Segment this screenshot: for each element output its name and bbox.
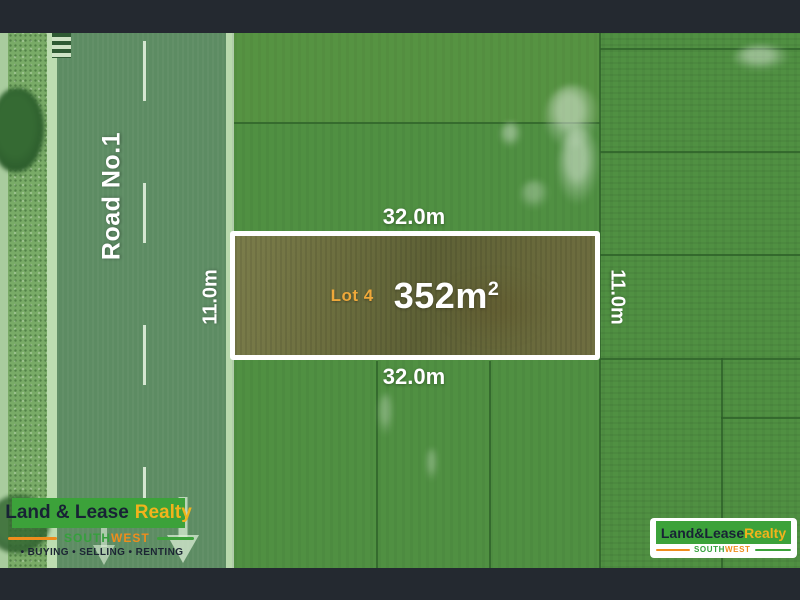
field-right-texture (600, 33, 800, 568)
bare-ground-patch (378, 393, 394, 437)
bare-ground-patch (733, 45, 791, 71)
dimension-bottom-label: 32.0m (383, 364, 445, 390)
lot-area-label: 352m2 (394, 275, 500, 317)
agency-name-banner: Land&Lease Realty (656, 521, 791, 544)
region-label-west: WEST (111, 531, 150, 545)
dimension-top-label: 32.0m (383, 204, 445, 230)
road-center-line (143, 41, 146, 568)
brand-name-accent: Realty (135, 502, 192, 524)
brand-name-accent: Realty (744, 525, 786, 541)
boundary-line (489, 361, 491, 568)
dimension-left-label: 11.0m (200, 269, 223, 325)
region-divider-orange (8, 537, 57, 540)
boundary-line (376, 361, 378, 568)
agency-name-banner: Land & Lease Realty (12, 498, 185, 528)
region-label-south: SOUTH (694, 545, 725, 554)
letterbox-bottom (0, 568, 800, 600)
bare-ground-patch (520, 180, 550, 210)
listing-image: Lot 4 352m2 Road No.1 32.0m 32.0m 11.0m … (0, 0, 800, 600)
road-name-label: Road No.1 (98, 132, 127, 260)
lot-area-superscript: 2 (488, 278, 500, 300)
brand-name-primary: Land & Lease (5, 502, 129, 524)
region-label-west: WEST (725, 545, 751, 554)
bare-ground-patch (500, 122, 522, 148)
region-label: SOUTHWEST (64, 531, 150, 545)
region-divider-orange (656, 549, 690, 551)
letterbox-top (0, 0, 800, 33)
agency-logo-right: Land&Lease Realty SOUTHWEST (650, 518, 797, 558)
bare-ground-patch (558, 128, 600, 206)
region-label-south: SOUTH (64, 531, 111, 545)
brand-name-primary: Land&Lease (661, 525, 744, 541)
region-divider-green (157, 537, 194, 540)
bare-ground-patch (426, 448, 438, 482)
agency-tagline: • BUYING • SELLING • RENTING (12, 547, 192, 558)
crosswalk-marking (52, 33, 71, 58)
region-row: SOUTHWEST (656, 544, 791, 555)
aerial-map: Lot 4 352m2 Road No.1 32.0m 32.0m 11.0m … (0, 33, 800, 568)
boundary-line (600, 254, 800, 256)
lot-boundary: Lot 4 352m2 (230, 231, 600, 360)
lot-number-label: Lot 4 (331, 286, 374, 306)
region-label: SOUTHWEST (694, 545, 751, 554)
boundary-line (721, 417, 800, 419)
verge-strip-mid (47, 33, 57, 568)
boundary-line (600, 358, 800, 360)
boundary-line (600, 151, 800, 153)
region-row: SOUTHWEST (8, 532, 194, 544)
region-divider-green (755, 549, 791, 551)
dimension-right-label: 11.0m (606, 269, 629, 325)
